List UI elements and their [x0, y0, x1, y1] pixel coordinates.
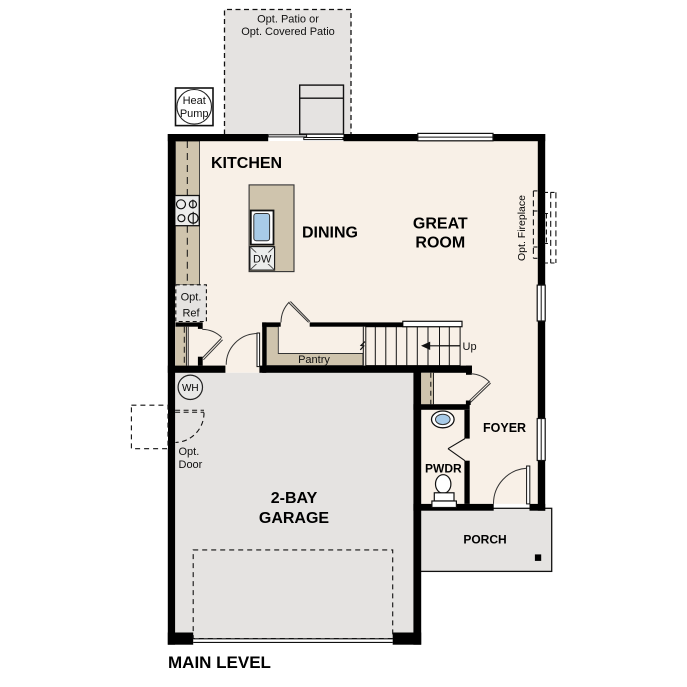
svg-text:FOYER: FOYER: [483, 421, 526, 435]
svg-text:Heat: Heat: [183, 95, 206, 107]
svg-text:MAIN LEVEL: MAIN LEVEL: [168, 653, 271, 672]
svg-text:Door: Door: [179, 459, 203, 471]
svg-text:GREAT: GREAT: [413, 215, 468, 232]
svg-text:Opt. Covered Patio: Opt. Covered Patio: [241, 26, 335, 38]
svg-text:Opt. Patio or: Opt. Patio or: [257, 14, 319, 26]
svg-text:WH: WH: [182, 383, 199, 394]
svg-text:Opt.: Opt.: [181, 292, 202, 304]
svg-text:Opt. Fireplace: Opt. Fireplace: [516, 195, 528, 261]
svg-text:ROOM: ROOM: [415, 235, 465, 252]
svg-text:Pantry: Pantry: [298, 354, 330, 366]
svg-text:Pump: Pump: [180, 108, 209, 120]
svg-text:Up: Up: [463, 341, 477, 353]
svg-text:GARAGE: GARAGE: [259, 510, 330, 527]
svg-text:KITCHEN: KITCHEN: [211, 155, 282, 172]
svg-text:Opt.: Opt.: [179, 446, 200, 458]
svg-text:PWDR: PWDR: [425, 462, 462, 476]
svg-text:2-BAY: 2-BAY: [271, 490, 318, 507]
svg-text:DINING: DINING: [302, 225, 358, 242]
svg-text:PORCH: PORCH: [463, 533, 506, 547]
svg-text:Ref: Ref: [182, 308, 200, 320]
svg-text:DW: DW: [253, 253, 272, 265]
